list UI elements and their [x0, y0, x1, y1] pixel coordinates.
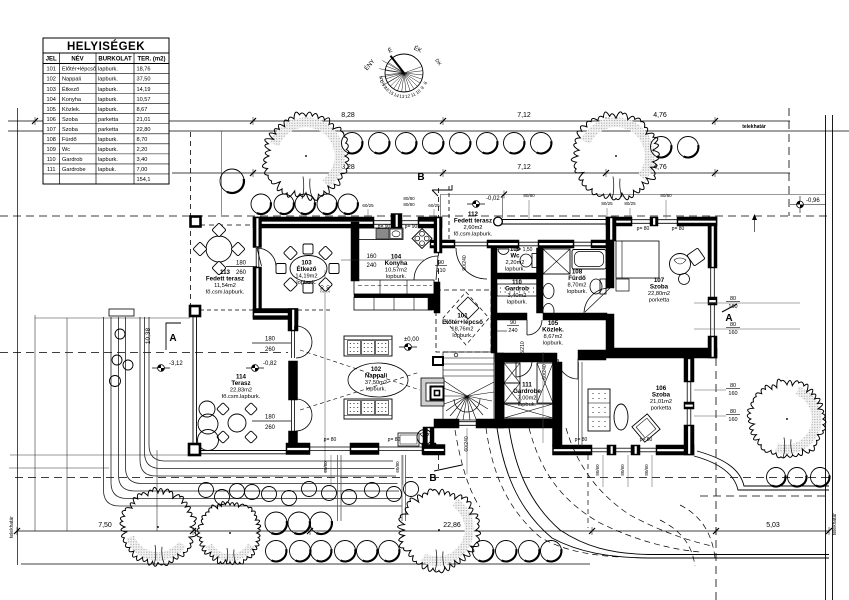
svg-text:Szoba: Szoba	[650, 284, 669, 291]
svg-text:8,70m2: 8,70m2	[568, 283, 587, 289]
svg-text:7,50: 7,50	[98, 522, 112, 529]
svg-text:22,86: 22,86	[443, 522, 461, 529]
svg-text:Fürdő: Fürdő	[62, 137, 77, 143]
svg-text:10,38: 10,38	[145, 327, 152, 344]
svg-text:240: 240	[366, 263, 377, 269]
svg-text:260: 260	[236, 270, 247, 276]
svg-text:lapbuk.: lapbuk.	[518, 402, 537, 408]
svg-text:160: 160	[728, 304, 737, 310]
svg-text:111: 111	[47, 167, 56, 173]
svg-text:lapburk.: lapburk.	[98, 157, 118, 163]
svg-text:80/25: 80/25	[601, 201, 613, 206]
svg-text:105: 105	[47, 107, 56, 113]
svg-text:lopburk.: lopburk.	[296, 280, 317, 286]
svg-text:4,76: 4,76	[653, 112, 667, 119]
svg-text:parketta: parketta	[98, 117, 119, 123]
svg-text:lapburk.: lapburk.	[98, 67, 118, 73]
svg-text:Szoba: Szoba	[62, 127, 79, 133]
svg-text:Szoba: Szoba	[62, 117, 79, 123]
svg-text:Gardrobe: Gardrobe	[62, 167, 86, 173]
svg-text:fő.csm.lapburk.: fő.csm.lapburk.	[454, 232, 493, 238]
svg-text:p= 90: p= 90	[378, 224, 391, 230]
svg-text:fő.csm.lapburk.: fő.csm.lapburk.	[206, 290, 245, 296]
svg-text:4,76: 4,76	[653, 164, 667, 171]
svg-text:80/80: 80/80	[403, 196, 415, 201]
svg-text:80/80: 80/80	[523, 193, 535, 198]
svg-text:fő.csm.lapburk.: fő.csm.lapburk.	[222, 394, 261, 400]
svg-text:±0,00: ±0,00	[404, 337, 420, 343]
svg-text:7,00m2: 7,00m2	[518, 396, 537, 402]
svg-text:7,12: 7,12	[517, 112, 531, 119]
svg-text:telekhatár: telekhatár	[9, 516, 15, 538]
svg-text:80: 80	[730, 383, 736, 389]
svg-text:2,60m2: 2,60m2	[464, 225, 483, 231]
svg-text:108: 108	[47, 137, 56, 143]
svg-text:80: 80	[730, 322, 736, 328]
svg-text:JEL: JEL	[46, 57, 57, 63]
svg-text:3,40: 3,40	[137, 157, 148, 163]
svg-text:230: 230	[320, 285, 325, 293]
svg-text:10,57m2: 10,57m2	[385, 268, 407, 274]
svg-text:180: 180	[236, 261, 247, 267]
svg-text:Étkező: Étkező	[62, 86, 79, 93]
svg-text:lopburk.: lopburk.	[366, 387, 387, 393]
svg-text:101: 101	[47, 67, 56, 73]
svg-text:TER. (m2): TER. (m2)	[137, 57, 165, 63]
svg-text:Gardrob: Gardrob	[505, 287, 529, 293]
svg-text:260: 260	[265, 347, 276, 353]
svg-text:80/60: 80/60	[620, 464, 625, 476]
svg-text:109: 109	[47, 147, 56, 153]
svg-text:lapburk.: lapburk.	[98, 87, 118, 93]
svg-text:60/80: 60/80	[323, 461, 328, 473]
svg-text:80/60: 80/60	[644, 464, 649, 476]
svg-text:porketta: porketta	[651, 406, 672, 412]
svg-text:p= 1,50: p= 1,50	[516, 247, 533, 253]
svg-text:90: 90	[438, 260, 444, 266]
svg-text:80/60: 80/60	[595, 464, 600, 476]
svg-text:154,1: 154,1	[137, 177, 151, 183]
svg-text:Szoba: Szoba	[652, 392, 671, 399]
svg-text:21,01m2: 21,01m2	[650, 399, 672, 405]
svg-text:lapburk.: lapburk.	[98, 77, 118, 83]
svg-text:7,12: 7,12	[517, 164, 531, 171]
svg-text:Konyha: Konyha	[62, 97, 82, 103]
svg-text:HELYISÉGEK: HELYISÉGEK	[67, 40, 145, 53]
svg-text:lapburk.: lapburk.	[98, 147, 118, 153]
svg-text:18,76m2: 18,76m2	[451, 327, 473, 333]
svg-text:8,67: 8,67	[137, 107, 148, 113]
svg-text:porketta: porketta	[649, 298, 670, 304]
svg-text:160: 160	[728, 417, 737, 423]
svg-text:Fürdő: Fürdő	[568, 275, 586, 282]
svg-text:-0,02: -0,02	[486, 196, 500, 202]
svg-text:8,67m2: 8,67m2	[544, 334, 563, 340]
svg-text:104: 104	[47, 97, 56, 103]
svg-text:3,40m2: 3,40m2	[508, 293, 527, 299]
svg-text:8,70: 8,70	[137, 137, 148, 143]
svg-text:lapburk.: lapburk.	[98, 107, 118, 113]
svg-text:210: 210	[436, 268, 445, 274]
svg-text:Előtér+lépcső: Előtér+lépcső	[442, 319, 483, 326]
svg-text:lapbuk.: lapbuk.	[98, 167, 116, 173]
svg-text:telekhatár: telekhatár	[832, 513, 838, 535]
svg-text:37,50: 37,50	[137, 77, 151, 83]
svg-text:Konyha: Konyha	[385, 260, 408, 267]
svg-text:5,03: 5,03	[766, 522, 780, 529]
svg-text:180: 180	[265, 415, 276, 421]
svg-text:p= 80: p= 80	[637, 226, 650, 232]
svg-text:160: 160	[366, 254, 377, 260]
svg-text:Nappali: Nappali	[62, 77, 81, 83]
svg-text:240: 240	[508, 328, 517, 334]
svg-text:Gardrobe: Gardrobe	[513, 388, 541, 395]
svg-text:Gardrob: Gardrob	[62, 157, 83, 163]
svg-text:BURKOLAT: BURKOLAT	[98, 57, 132, 63]
svg-text:14,19m2: 14,19m2	[295, 274, 317, 280]
svg-text:Nappali: Nappali	[365, 373, 388, 380]
svg-text:p= 80: p= 80	[324, 437, 337, 443]
svg-text:180: 180	[265, 337, 276, 343]
svg-text:Fedett terasz: Fedett terasz	[454, 218, 492, 225]
svg-text:lopburk.: lopburk.	[567, 289, 588, 295]
svg-text:lapburk.: lapburk.	[98, 97, 118, 103]
svg-text:22,83m2: 22,83m2	[230, 388, 252, 394]
svg-text:8,28: 8,28	[341, 112, 355, 119]
svg-text:14,19: 14,19	[137, 87, 151, 93]
svg-text:102: 102	[47, 77, 56, 83]
svg-text:60/80: 60/80	[395, 461, 400, 473]
svg-text:parketta: parketta	[98, 127, 119, 133]
svg-text:p= 80: p= 80	[640, 437, 653, 443]
svg-text:60/25: 60/25	[428, 203, 440, 208]
svg-text:2,20m2: 2,20m2	[506, 260, 525, 266]
svg-text:2,20: 2,20	[137, 147, 148, 153]
svg-text:22,80m2: 22,80m2	[648, 291, 670, 297]
svg-text:37,50m2: 37,50m2	[365, 380, 387, 386]
svg-text:p= 90: p= 90	[405, 224, 418, 230]
svg-text:240: 240	[326, 285, 331, 293]
svg-text:90/240: 90/240	[462, 255, 468, 271]
svg-text:Wc: Wc	[62, 147, 70, 153]
svg-text:p= 80: p= 80	[672, 226, 685, 232]
svg-text:Terasz: Terasz	[231, 380, 250, 387]
svg-text:Wc: Wc	[511, 254, 521, 260]
svg-text:80: 80	[730, 296, 736, 302]
svg-text:60/25: 60/25	[362, 203, 374, 208]
svg-text:Közlek.: Közlek.	[62, 107, 81, 113]
svg-text:103: 103	[47, 87, 56, 93]
svg-text:Fedett terasz: Fedett terasz	[206, 276, 244, 283]
svg-text:160: 160	[728, 391, 737, 397]
svg-text:10,57: 10,57	[137, 97, 151, 103]
svg-text:107: 107	[47, 127, 56, 133]
svg-text:Előtér+lépcső: Előtér+lépcső	[62, 67, 96, 73]
svg-text:A: A	[169, 333, 176, 344]
svg-text:80/80: 80/80	[660, 193, 672, 198]
svg-text:lopburk.: lopburk.	[452, 333, 473, 339]
svg-text:110: 110	[47, 157, 56, 163]
svg-text:telekhatár: telekhatár	[742, 124, 766, 130]
svg-text:p= 80: p= 80	[575, 437, 588, 443]
svg-text:80: 80	[730, 409, 736, 415]
svg-text:22,80: 22,80	[137, 127, 151, 133]
svg-text:-0,96: -0,96	[806, 198, 820, 204]
svg-text:75/210: 75/210	[520, 341, 526, 357]
svg-text:18,76: 18,76	[137, 67, 151, 73]
svg-text:21,01: 21,01	[137, 117, 151, 123]
svg-text:-0,82: -0,82	[263, 361, 277, 367]
svg-text:B: B	[417, 172, 424, 183]
svg-text:NÉV: NÉV	[71, 55, 83, 63]
svg-text:Közlek.: Közlek.	[542, 327, 564, 334]
svg-text:lopburk.: lopburk.	[543, 341, 564, 347]
svg-text:-3,12: -3,12	[169, 361, 183, 367]
svg-text:lapburk.: lapburk.	[505, 267, 526, 273]
svg-text:90: 90	[510, 320, 516, 326]
svg-text:160: 160	[728, 330, 737, 336]
svg-text:106: 106	[47, 117, 56, 123]
svg-text:lapburk.: lapburk.	[507, 300, 528, 306]
svg-text:B: B	[429, 473, 436, 484]
svg-text:Étkező: Étkező	[297, 265, 317, 273]
svg-text:11,54m2: 11,54m2	[214, 283, 236, 289]
svg-text:80/80: 80/80	[403, 202, 415, 207]
svg-text:110: 110	[512, 280, 522, 286]
svg-text:80/25: 80/25	[624, 201, 636, 206]
svg-text:lapburk.: lapburk.	[98, 137, 118, 143]
svg-text:7,00: 7,00	[137, 167, 148, 173]
svg-text:p= 80: p= 80	[388, 437, 401, 443]
svg-text:260: 260	[265, 425, 276, 431]
svg-text:lopburk.: lopburk.	[386, 274, 407, 280]
